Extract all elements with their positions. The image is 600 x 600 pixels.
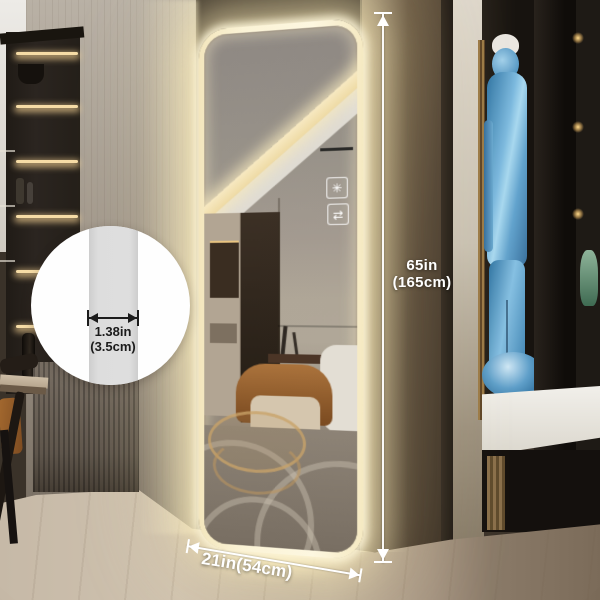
shelf-accent-light <box>572 208 584 220</box>
height-dim-arrow-down <box>377 549 389 560</box>
color-temp-icon: ⇄ <box>333 208 343 220</box>
reflected-figurine-2 <box>292 332 298 356</box>
thickness-arrow-right <box>128 313 137 323</box>
shelf-bottle-2 <box>27 182 33 204</box>
thickness-value-in: 1.38in <box>61 324 165 339</box>
thickness-label: 1.38in (3.5cm) <box>61 324 165 354</box>
shelf-accent-light <box>572 121 584 133</box>
product-photo: ✳ ⇄ 65in (165cm) 21in(54cm) 1.38in (3.5 <box>0 0 600 600</box>
sculpture-torso <box>487 72 527 268</box>
width-dim-arrow-right <box>349 568 361 581</box>
thickness-value-cm: (3.5cm) <box>61 339 165 354</box>
height-dim-cap-top <box>374 12 392 14</box>
color-temp-button: ⇄ <box>327 203 349 225</box>
height-dim-arrow-up <box>377 15 389 26</box>
thickness-bar <box>89 226 138 385</box>
brightness-icon: ✳ <box>332 182 342 195</box>
brightness-button: ✳ <box>326 177 348 199</box>
shelf-bottles <box>16 178 24 204</box>
reflected-vent <box>320 147 353 151</box>
height-value-cm: (165cm) <box>380 274 464 291</box>
reflected-chair-rail <box>278 325 357 327</box>
shelf-pot <box>18 64 44 84</box>
height-dimension-label: 65in (165cm) <box>380 257 464 291</box>
mirror-glass: ✳ ⇄ <box>204 24 357 554</box>
cabinet-wood-slats <box>487 456 505 530</box>
thickness-inset-circle: 1.38in (3.5cm) <box>31 226 190 385</box>
cabinet-niche <box>210 241 239 298</box>
shelf-accent-light <box>572 32 584 44</box>
led-mirror: ✳ ⇄ <box>199 17 364 560</box>
height-dim-cap-bottom <box>374 561 392 563</box>
sculpture-arm <box>484 120 493 252</box>
glass-shelf-edge <box>0 205 15 207</box>
reflected-figurine <box>280 326 287 356</box>
reflected-wall-corner-line <box>278 198 279 358</box>
reflected-cove-light <box>204 56 357 228</box>
glass-shelf-edge <box>0 150 15 152</box>
height-value-in: 65in <box>380 257 464 274</box>
green-vase <box>580 250 598 306</box>
glass-shelf-edge <box>0 260 15 262</box>
thickness-arrow-left <box>89 313 98 323</box>
cabinet-open-shelf <box>210 323 237 343</box>
